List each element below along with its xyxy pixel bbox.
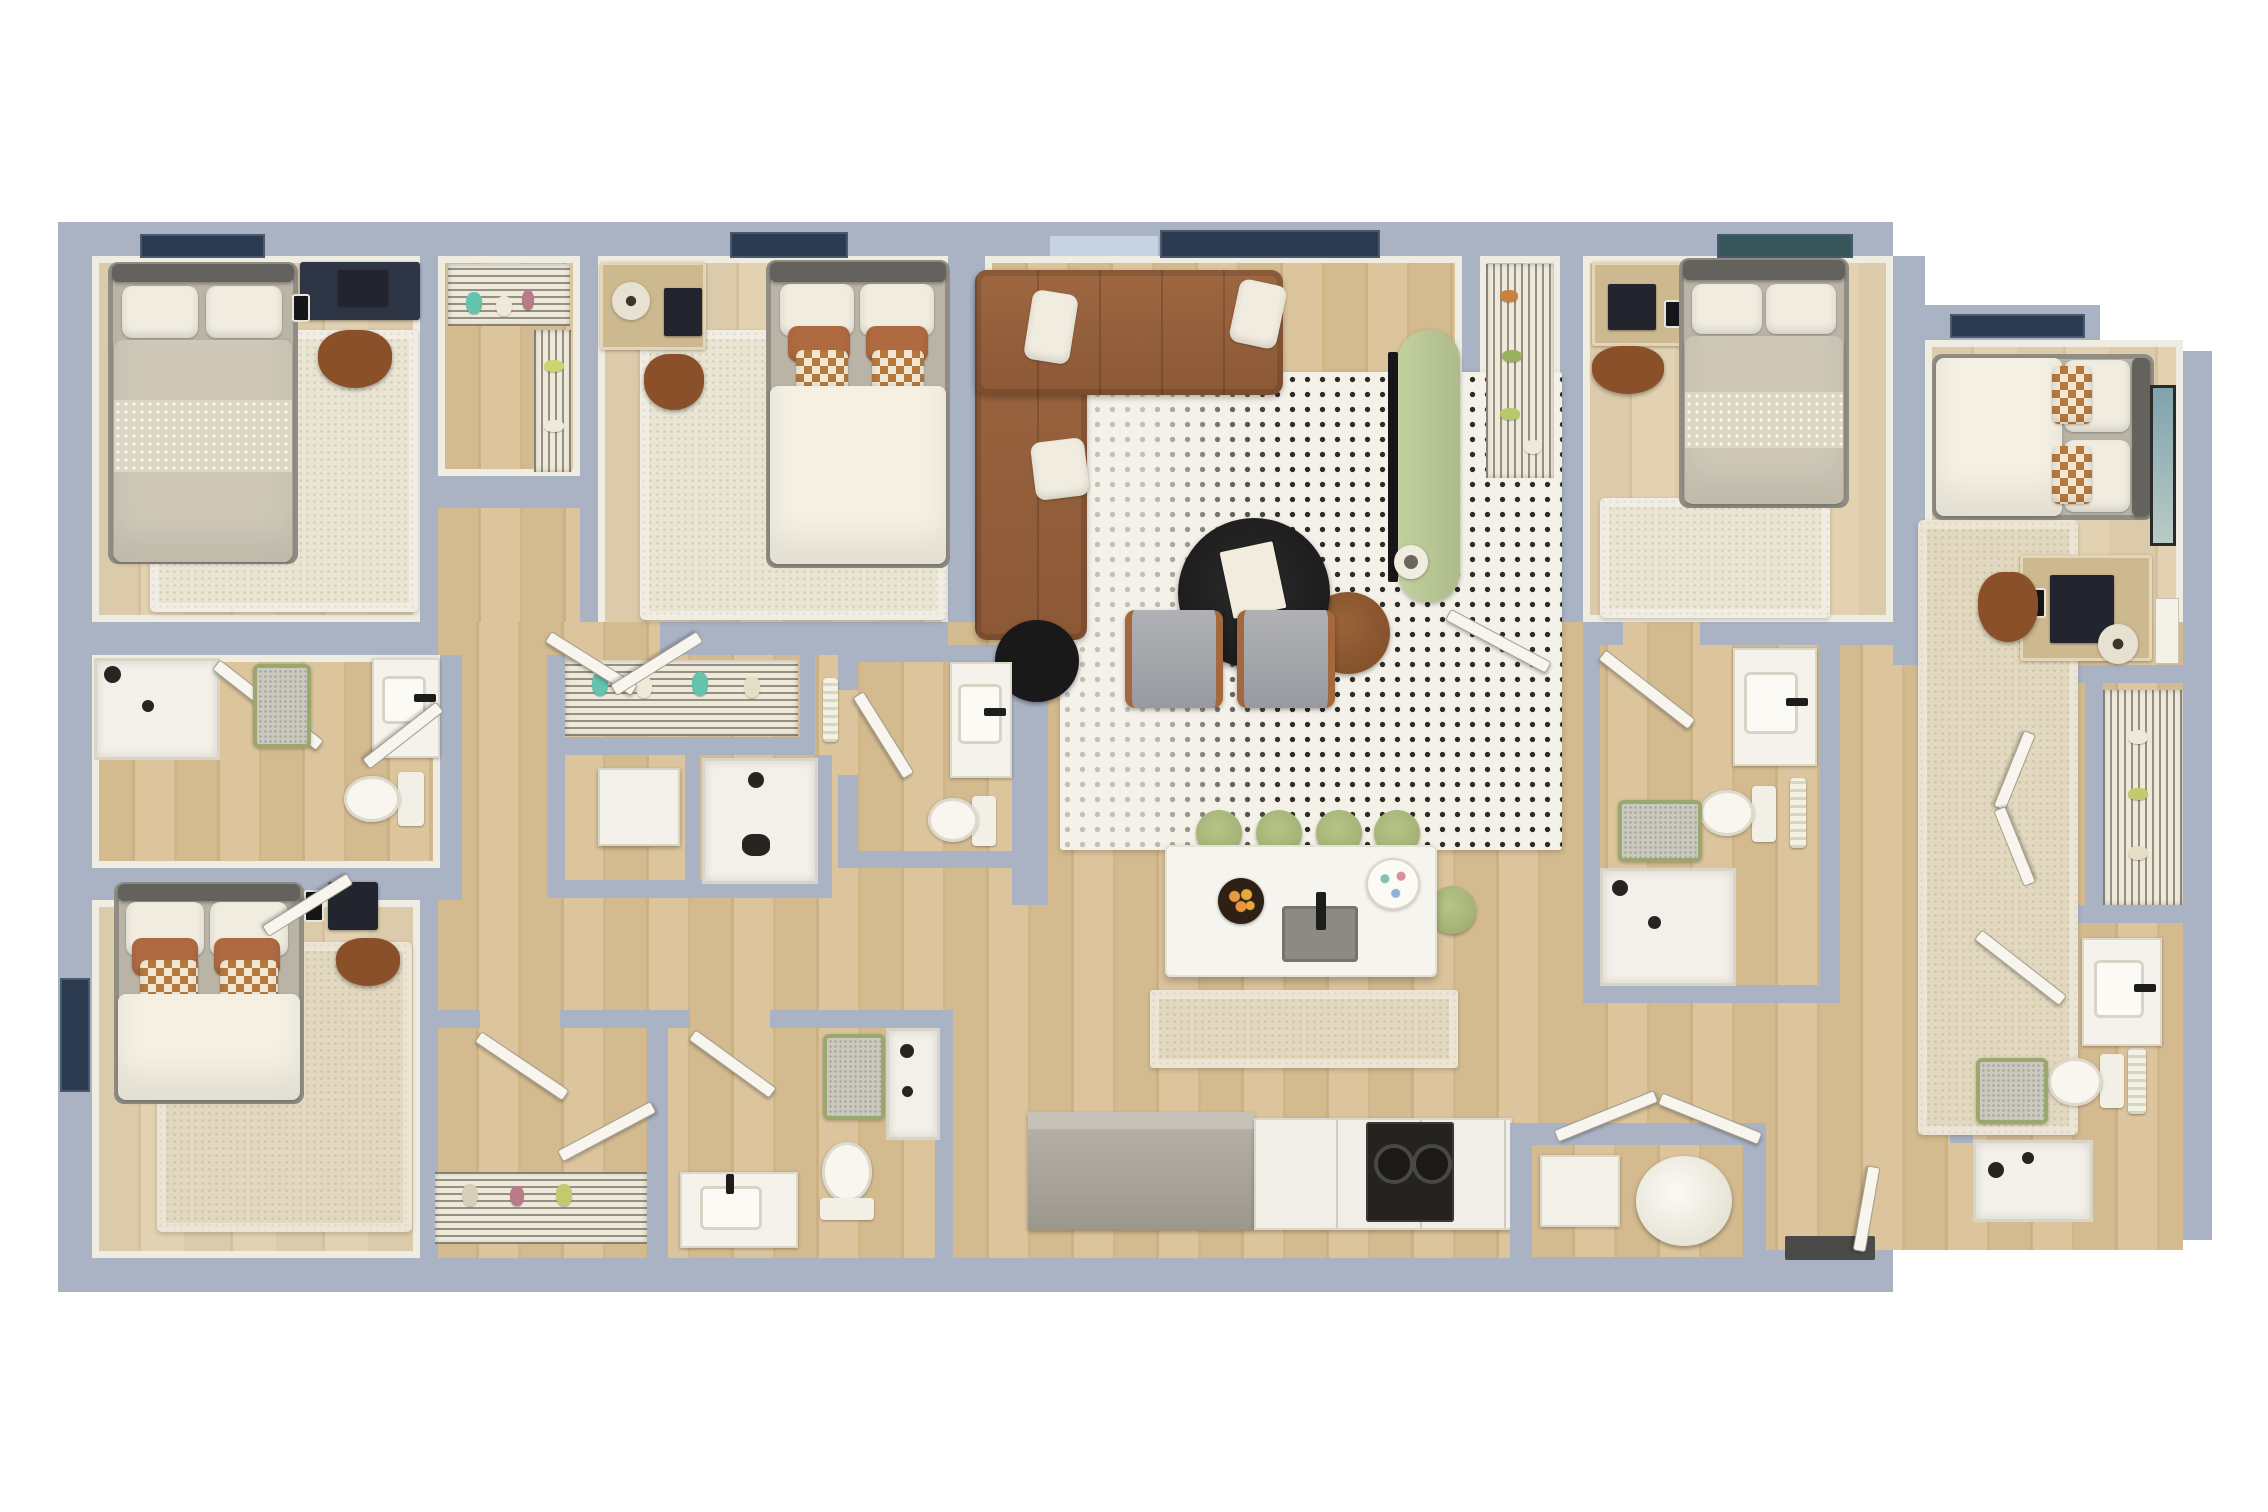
closet1-clothes-cream [544,420,564,432]
bedroom1-pillow-right [206,286,282,338]
plant-closet-rack [1486,264,1554,478]
bedroom1-headboard [112,264,294,282]
bedroom4-floor-lamp [2098,624,2138,664]
bedroom3-laptop [1608,284,1656,330]
bath3-toilet-tank [1752,786,1776,842]
armchair-left [1125,610,1223,708]
bottombath-shower-head [900,1044,914,1058]
living-window [1160,230,1380,258]
bedroom4-headboard [2132,358,2150,516]
midbath-toilet-bowl [928,798,978,842]
bedroom1-window [140,234,265,258]
bedroom3-chair [1592,346,1664,394]
bedroom1-phone [292,294,310,322]
closet1-hall-floor [438,508,580,622]
bath4-toilet-bowl [2048,1058,2102,1106]
bath3-shower-drain [1648,916,1661,929]
bedroom2-chair [644,354,704,410]
bathA-toilet-bowl [344,776,400,822]
wall-closet1-hall [438,476,580,508]
burner-right [1412,1144,1452,1184]
bedroom2-laptop [664,288,702,336]
right-closet-item-2 [2128,788,2148,800]
wall-util-left [547,755,565,898]
bedroom-bl-chair [336,938,400,986]
kitchen-runner-rug [1150,990,1458,1068]
closet1-shelf-right [534,330,572,472]
wall-bath3-left [1583,645,1600,985]
bath4-toilet-tank [2100,1054,2124,1108]
bedroom1-chair [318,330,392,388]
wall-bed1-closet1 [420,256,438,622]
hall-closet-clothes-cream [744,676,760,698]
bottombath-mat [823,1034,885,1120]
bedroom4-duvet [1936,358,2062,516]
wall-util-shower [685,755,700,898]
bedroom-bl-headboard [118,884,300,901]
bathA-shower-drain [142,700,154,712]
bedroom2-window [730,232,848,258]
plant-closet-plant-3 [1500,408,1520,420]
bedroom1-blanket-band [114,400,292,472]
utility-cabinet [598,768,680,846]
bedroom2-headboard [770,262,946,282]
serving-tray [1366,858,1420,910]
midbath-faucet [984,708,1006,716]
bedroom1-laptop [338,270,388,306]
wall-bed1-bathA [58,622,438,655]
closet1-clothes-lime [544,360,564,372]
bedroom4-wall-board [2155,598,2179,664]
wall-closetrow-bottom [547,737,815,755]
island-faucet [1316,892,1326,930]
wall-bed3-bath3-b [1700,622,1893,645]
wall-rightcloset-left [2085,665,2103,905]
living-window-sill [1050,236,1158,256]
middle-shower-head [748,772,764,788]
closet1-clothes-white [496,296,512,316]
console-vase [1394,545,1428,579]
bath4-shower-drain [2022,1152,2034,1164]
bedroom3-rug [1600,498,1830,618]
bath4-mat [1976,1058,2048,1124]
bedroom4-wall-art [2150,385,2176,546]
bedroom4-window [1950,314,2085,338]
sofa-pillow-2 [1030,437,1091,501]
bedroom3-window [1717,234,1853,258]
wall-bath3-right [1820,645,1840,985]
bottombath-shower [886,1028,940,1140]
wall-bottomcloset-top-a [425,1010,480,1028]
bedroom3-blanket-band [1685,392,1843,448]
bath3-mat [1618,800,1702,862]
middle-shower-stool [742,834,770,856]
hall-closet-clothes-teal2 [692,672,708,696]
bottombath-toilet-tank [820,1198,874,1220]
burner-left [1374,1144,1414,1184]
wall-bath3-bottom [1583,985,1840,1003]
refrigerator-counter [1028,1112,1254,1230]
wall-midbath-bottom [838,851,1030,868]
bedroom2-duvet [770,386,946,564]
wall-bathA-right [440,655,462,900]
plant-closet-plant-1 [1500,290,1518,302]
tv-screen [1388,352,1398,582]
wall-bed3-bath3-a [1583,622,1623,645]
washer-drum [1636,1156,1732,1246]
dryer-box [1540,1155,1620,1227]
bedroom4-check-pillow-bottom [2052,446,2092,504]
bath3-towel [1790,778,1806,848]
bedroom2-desk-lamp [612,282,650,320]
bath3-shower-head [1612,880,1628,896]
bath3-toilet-bowl [1700,790,1754,836]
bottombath-faucet [726,1174,734,1194]
bath4-faucet [2134,984,2156,992]
wall-closet1-bed2 [580,256,598,622]
closet1-clothes-teal [466,292,482,314]
bedroom4-chair [1978,572,2038,642]
bath4-shower-head [1988,1162,2004,1178]
bedroom-bl-duvet [118,994,300,1100]
bottombath-shower-drain [902,1086,913,1097]
bedroom3-pillow-left [1692,284,1762,334]
plant-closet-plant-2 [1502,350,1522,362]
right-closet-item-1 [2128,730,2148,744]
wall-bottombath-top-b [770,1010,953,1028]
floor-plan-canvas [0,0,2268,1512]
bathA-shower-head [104,666,121,683]
bath4-shower [1973,1140,2093,1222]
wall-bottombath-top-a [668,1010,690,1028]
bathA-bath-mat [253,664,311,748]
bottom-closet-clothes-2 [510,1186,524,1206]
wall-plantcloset-bed3 [1560,256,1583,622]
armchair-right [1237,610,1335,708]
bathA-toilet-tank [398,772,424,826]
bedroom-bl-window [60,978,90,1092]
plant-closet-item-white [1524,440,1542,454]
hall-towel [823,678,838,742]
closet1-shelf-top [448,264,570,326]
bedroom4-check-pillow-top [2052,366,2092,424]
bedroom3-pillow-right [1766,284,1836,334]
bottom-closet-clothes-1 [462,1184,478,1206]
bath3-faucet [1786,698,1808,706]
bottombath-toilet-bowl [822,1142,872,1202]
right-closet-item-3 [2128,846,2148,860]
bathA-faucet [414,694,436,702]
fruit-bowl [1218,878,1264,924]
bottom-closet-clothes-3 [556,1184,572,1206]
bedroom3-headboard [1683,260,1845,280]
closet1-clothes-pink [522,290,534,310]
wall-bottomcloset-right [648,1010,668,1258]
bedroom1-pillow-left [122,286,198,338]
bath4-towel [2128,1048,2146,1114]
bottom-closet-rack [435,1172,647,1244]
